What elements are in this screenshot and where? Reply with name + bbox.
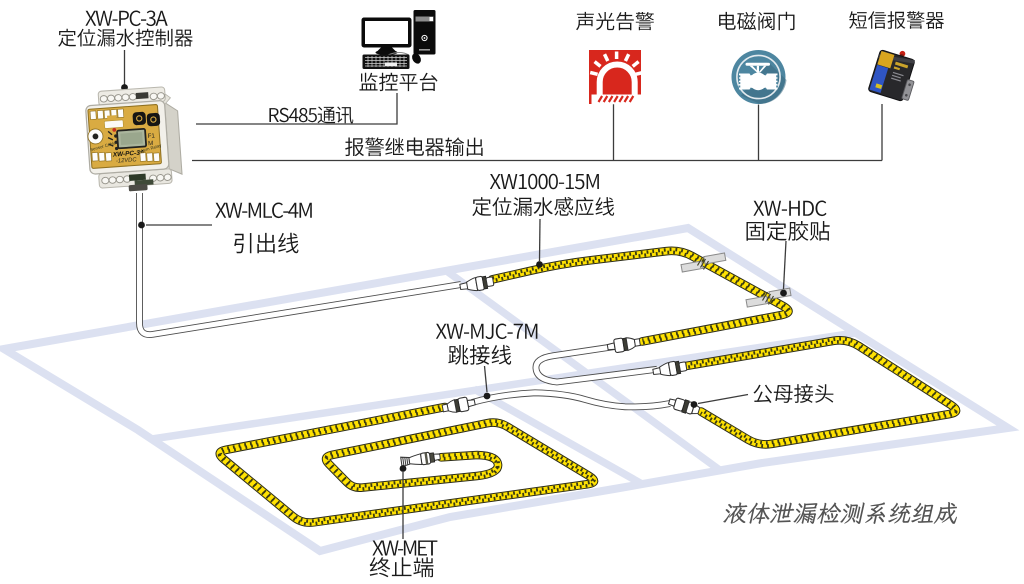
svg-text:F1: F1: [147, 132, 155, 140]
